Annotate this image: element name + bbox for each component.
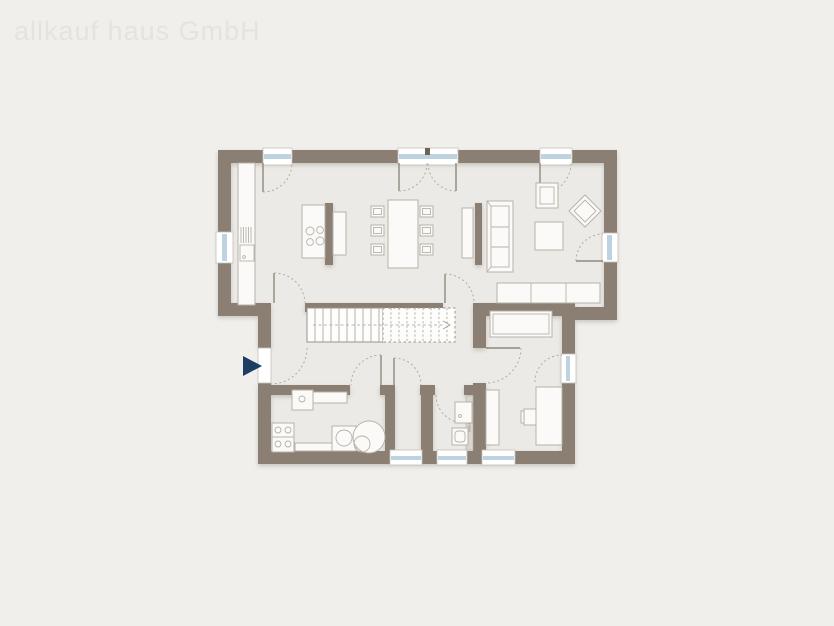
tv-lowboard xyxy=(462,208,473,258)
washing-machine xyxy=(332,426,356,451)
coffee-table xyxy=(535,222,563,250)
window-top-left xyxy=(263,148,292,165)
bathroom: Dusche xyxy=(452,396,473,450)
bed xyxy=(490,311,552,337)
window-top-right xyxy=(540,148,572,165)
wall-bedroom-stub xyxy=(473,303,486,348)
wall-island-back xyxy=(325,203,333,265)
bath-sink xyxy=(455,402,472,423)
island-bar-counter xyxy=(333,212,346,255)
armchair xyxy=(536,183,558,208)
window-left-wall xyxy=(216,232,233,263)
sideboard xyxy=(497,283,600,303)
stairs xyxy=(307,308,455,342)
utility-counter-low xyxy=(295,443,333,451)
wall-right-lower xyxy=(562,307,575,464)
wall-tv-panel xyxy=(475,203,482,265)
desk-chair xyxy=(521,409,536,425)
double-door-top-center xyxy=(398,148,458,165)
kitchen-island xyxy=(302,205,325,258)
window-bedroom-right xyxy=(561,354,576,383)
boiler-tank xyxy=(353,421,385,453)
door-center-post xyxy=(425,148,430,155)
window-bottom-bedroom xyxy=(482,450,515,465)
sofa-3-seat xyxy=(487,201,513,272)
wall-hall-bottom-b xyxy=(464,385,486,395)
window-bottom-storage xyxy=(390,450,422,465)
wall-entry-stub xyxy=(258,303,271,348)
terrace-door-right-wall xyxy=(602,233,618,262)
floor-plan-drawing: Dusche xyxy=(0,0,834,626)
toilet xyxy=(452,428,468,445)
utility-counter-top xyxy=(313,392,347,403)
wardrobe xyxy=(486,390,499,445)
desk xyxy=(536,387,562,445)
dining-table xyxy=(388,200,418,268)
wall-bath-left xyxy=(421,385,433,464)
floor-plan-page: allkauf haus GmbH xyxy=(0,0,834,626)
washer-dryer-stack xyxy=(272,423,294,452)
laundry-sink xyxy=(292,390,313,410)
window-bottom-bath xyxy=(437,450,467,465)
